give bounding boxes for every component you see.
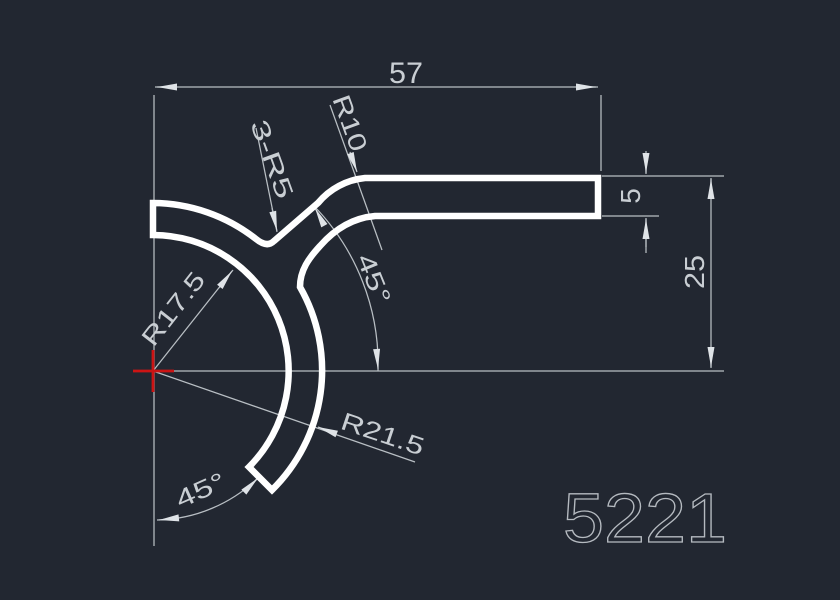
dimension-arrow — [315, 208, 324, 225]
dim-inner-radius-text: R17.5 — [136, 267, 211, 352]
dim-lower-angle-text: 45° — [171, 467, 230, 514]
dim-thickness-text: 5 — [615, 188, 646, 204]
dim-height-text: 25 — [679, 255, 710, 289]
dimension-arrow — [272, 208, 277, 231]
center-crosshair — [133, 350, 174, 392]
dim-outer-radius-text: R21.5 — [337, 407, 427, 461]
cad-canvas: 57 5 25 R17.5 R21.5 R10 3-R5 45° — [0, 0, 840, 600]
dim-top-fillet-text: R10 — [326, 91, 372, 155]
dim-upper-angle-text: 45° — [351, 250, 396, 309]
dimension-arrow — [246, 478, 258, 490]
dimension-arrow — [318, 427, 334, 433]
dim-fillet-note-text: 3-R5 — [244, 116, 298, 203]
dimension-layer: 57 5 25 R17.5 R21.5 R10 3-R5 45° — [133, 57, 724, 546]
dimension-arrow — [219, 271, 232, 288]
part-number: 5221 — [563, 479, 727, 557]
dim-width-text: 57 — [389, 57, 423, 90]
